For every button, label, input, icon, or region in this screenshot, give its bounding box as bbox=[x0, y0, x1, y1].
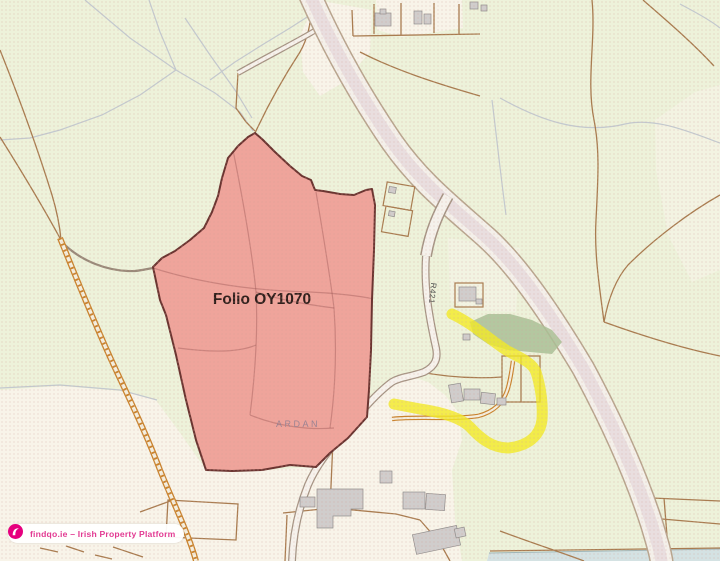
building bbox=[481, 5, 487, 11]
building bbox=[464, 389, 480, 400]
building bbox=[463, 334, 470, 340]
findqo-logo-icon bbox=[11, 526, 26, 541]
building bbox=[459, 287, 476, 301]
map-canvas: Folio OY1070 ARDAN R421 findqo.ie – Iris… bbox=[0, 0, 720, 561]
building bbox=[480, 392, 495, 404]
building bbox=[454, 527, 466, 538]
building bbox=[388, 186, 396, 193]
watermark-badge: findqo.ie – Irish Property Platform bbox=[8, 524, 184, 543]
folio-label: Folio OY1070 bbox=[213, 291, 311, 308]
building bbox=[380, 9, 386, 14]
building bbox=[476, 299, 482, 304]
building bbox=[497, 398, 506, 405]
building bbox=[425, 493, 445, 510]
building bbox=[388, 211, 395, 217]
building bbox=[403, 492, 425, 509]
watermark-text: findqo.ie – Irish Property Platform bbox=[30, 529, 175, 539]
building bbox=[375, 13, 391, 26]
townland-label: ARDAN bbox=[276, 419, 320, 429]
property-map: Folio OY1070 ARDAN R421 bbox=[0, 0, 720, 561]
building bbox=[300, 497, 315, 507]
building bbox=[380, 471, 392, 483]
building bbox=[424, 14, 431, 24]
building bbox=[414, 11, 422, 24]
building bbox=[470, 2, 478, 9]
